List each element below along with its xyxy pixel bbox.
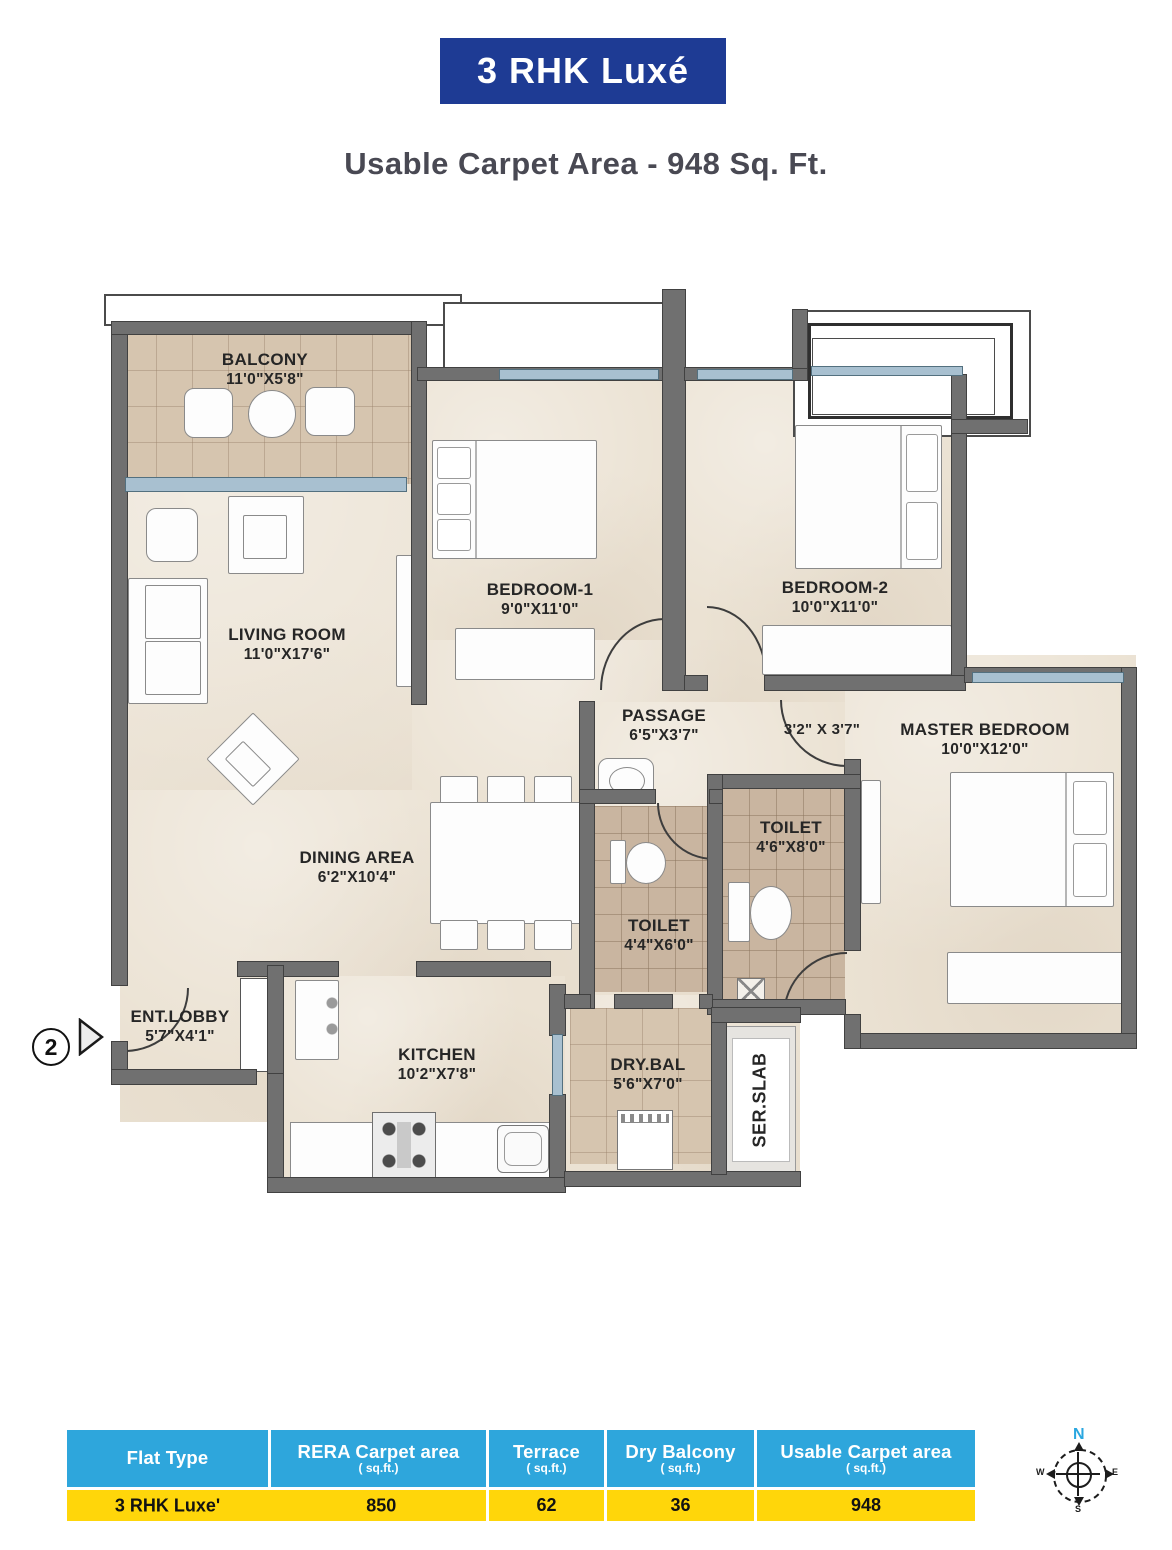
wall [268, 1074, 283, 1186]
wall [845, 1015, 860, 1048]
duct-shaft [240, 978, 268, 1072]
entry-arrow-icon [78, 1018, 104, 1056]
wardrobe-master-side [861, 780, 881, 904]
wall [580, 790, 655, 803]
cell-dry-balcony: 36 [607, 1490, 754, 1521]
kitchen-sink [497, 1125, 549, 1173]
balcony-chair [184, 388, 233, 438]
wall [615, 995, 672, 1008]
side-table [146, 508, 198, 562]
wardrobe-master [947, 952, 1125, 1004]
spec-table-row: 3 RHK Luxe' 850 62 36 948 [67, 1490, 975, 1521]
wall [765, 676, 965, 690]
room-label-master: MASTER BEDROOM10'0"X12'0" [900, 720, 1069, 760]
header-usable-carpet: Usable Carpet area( sq.ft.) [757, 1430, 975, 1487]
room-label-balcony: BALCONY11'0"X5'8" [222, 350, 308, 390]
window [973, 673, 1123, 682]
room-label-toilet1: TOILET4'6"X8'0" [756, 818, 826, 858]
dining-chair [534, 920, 572, 950]
terrace-outline-inner [812, 338, 995, 415]
window [500, 370, 658, 379]
armchair [228, 496, 304, 574]
dining-chair [440, 920, 478, 950]
page-title: 3 RHK Luxé [440, 38, 726, 104]
wc-tank-toilet1 [728, 882, 750, 942]
wall [710, 790, 722, 803]
bed-master [950, 772, 1114, 907]
dining-chair [487, 920, 525, 950]
cell-rera-carpet: 850 [366, 1495, 396, 1516]
balcony-table [248, 390, 296, 438]
room-label-passage: PASSAGE6'5"X3'7" [622, 706, 706, 746]
roof-strip-bedroom1 [443, 302, 668, 372]
dining-table [430, 802, 582, 924]
balcony-chair [305, 387, 355, 436]
room-label-bedroom2: BEDROOM-210'0"X11'0" [782, 578, 889, 618]
bed-bedroom2 [795, 425, 942, 569]
compass-south: S [1075, 1504, 1081, 1514]
window [126, 478, 406, 491]
spec-table-header: Flat Type RERA Carpet area( sq.ft.) Terr… [67, 1430, 975, 1487]
cell-flat-type-rera: 3 RHK Luxe' 850 [67, 1490, 486, 1521]
window [553, 1035, 562, 1095]
header-terrace: Terrace( sq.ft.) [489, 1430, 604, 1487]
wall [845, 1034, 1136, 1048]
area-spec-table: Flat Type RERA Carpet area( sq.ft.) Terr… [67, 1430, 975, 1521]
window [698, 370, 792, 379]
carpet-area-subtitle: Usable Carpet Area - 948 Sq. Ft. [0, 146, 1172, 182]
room-label-toilet2: TOILET4'4"X6'0" [624, 916, 694, 956]
wc-bowl-toilet1 [750, 886, 792, 940]
bed-bedroom1 [432, 440, 597, 559]
page: 3 RHK Luxé Usable Carpet Area - 948 Sq. … [0, 0, 1172, 1550]
wall [708, 775, 722, 1014]
stove [372, 1112, 436, 1178]
header-dry-balcony: Dry Balcony( sq.ft.) [607, 1430, 754, 1487]
header-rera-carpet: RERA Carpet area( sq.ft.) [271, 1430, 486, 1487]
room-label-kitchen: KITCHEN10'2"X7'8" [398, 1045, 477, 1085]
cell-terrace: 62 [489, 1490, 604, 1521]
room-label-serslab: SER.SLAB [750, 1052, 771, 1147]
room-label-bedroom1: BEDROOM-19'0"X11'0" [487, 580, 594, 620]
wall [952, 420, 1027, 433]
room-label-lobby: ENT.LOBBY5'7"X4'1" [130, 1007, 229, 1047]
wall [580, 702, 594, 1008]
room-label-passage2: 3'2" X 3'7" [784, 721, 860, 739]
wall [565, 995, 590, 1008]
cell-flat-type: 3 RHK Luxe' [115, 1495, 220, 1516]
wall [663, 290, 685, 690]
wall [417, 962, 550, 976]
wall [268, 966, 283, 1074]
floor-plan: BALCONY11'0"X5'8" LIVING ROOM11'0"X17'6"… [100, 290, 1140, 1200]
sofa [128, 578, 208, 704]
wall [1122, 668, 1136, 1048]
wall [565, 1172, 800, 1186]
wall [238, 962, 338, 976]
compass-west: W [1036, 1467, 1045, 1477]
wall [112, 1070, 256, 1084]
wall [685, 676, 707, 690]
compass-north: N [1073, 1426, 1085, 1444]
entry-number-badge: 2 [32, 1028, 70, 1066]
wall [268, 1178, 565, 1192]
header-flat-type: Flat Type [67, 1430, 268, 1487]
compass-icon: N E S W [1042, 1436, 1118, 1512]
wardrobe-bedroom1 [455, 628, 595, 680]
wall [712, 1008, 800, 1022]
wall [700, 995, 712, 1008]
window [812, 367, 962, 375]
wall [550, 1095, 565, 1182]
wall [112, 322, 127, 985]
wc-tank-toilet2 [610, 840, 626, 884]
wall [712, 1008, 726, 1174]
room-label-drybal: DRY.BAL5'6"X7'0" [610, 1055, 685, 1095]
refrigerator [295, 980, 339, 1060]
compass-east: E [1112, 1467, 1118, 1477]
cell-usable-carpet: 948 [757, 1490, 975, 1521]
wall [112, 322, 426, 334]
room-label-living: LIVING ROOM11'0"X17'6" [228, 625, 346, 665]
wall [550, 985, 565, 1035]
wall [708, 775, 860, 788]
wall [845, 760, 860, 950]
room-label-dining: DINING AREA6'2"X10'4" [299, 848, 414, 888]
wall [793, 310, 807, 368]
wardrobe-bedroom2 [762, 625, 952, 675]
washing-machine [617, 1110, 673, 1170]
wc-bowl-toilet2 [626, 842, 666, 884]
